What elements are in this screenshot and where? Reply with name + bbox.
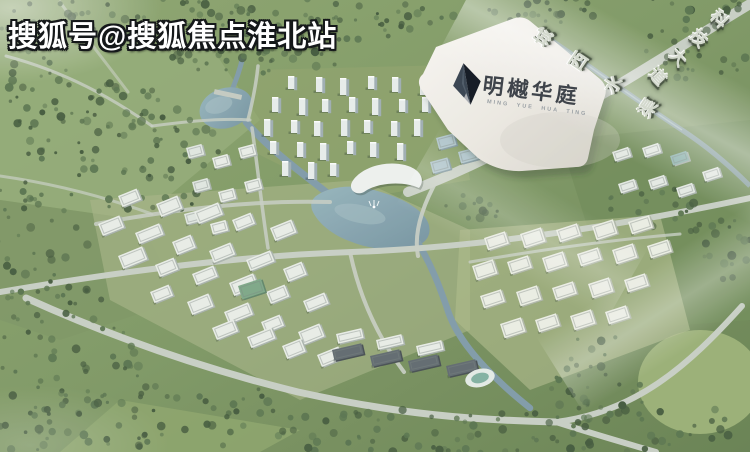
aerial-scene <box>0 0 750 452</box>
aerial-masterplan-rendering: 搜狐号@搜狐焦点淮北站 明樾华庭 MING YUE HUA TING 科技大道 … <box>0 0 750 452</box>
brand-logo-icon <box>447 59 486 109</box>
haze <box>0 0 750 452</box>
watermark-text: 搜狐号@搜狐焦点淮北站 <box>8 13 337 55</box>
